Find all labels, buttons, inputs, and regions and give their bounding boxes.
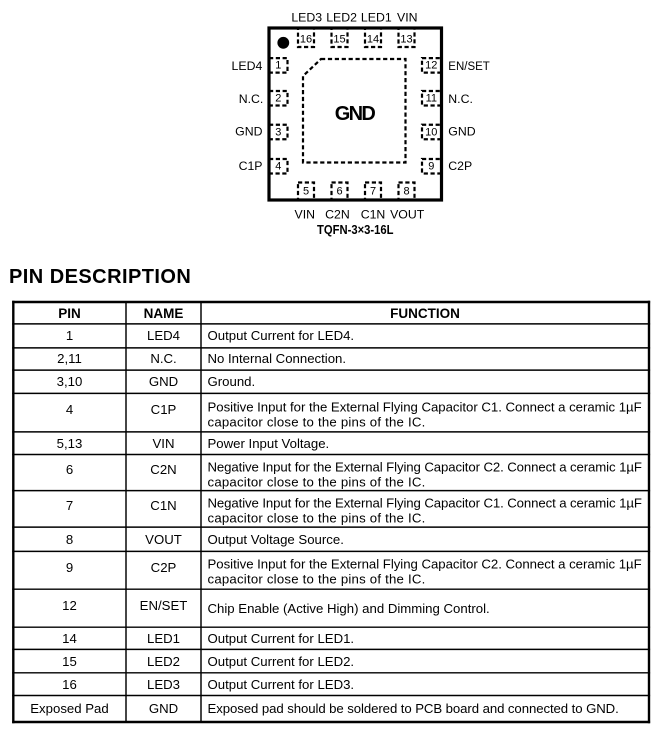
svg-text:15: 15: [333, 33, 345, 45]
svg-text:C2P: C2P: [448, 159, 472, 173]
svg-text:N.C.: N.C.: [239, 92, 264, 106]
svg-text:11: 11: [426, 92, 437, 104]
svg-text:8: 8: [403, 185, 409, 197]
svg-text:VOUT: VOUT: [390, 208, 425, 222]
svg-text:LED2: LED2: [326, 10, 357, 24]
svg-text:C2N: C2N: [325, 208, 350, 222]
svg-text:6: 6: [336, 185, 342, 197]
svg-text:N.C.: N.C.: [448, 92, 473, 106]
svg-text:GND: GND: [235, 125, 262, 139]
svg-text:7: 7: [370, 185, 376, 197]
svg-text:9: 9: [428, 160, 434, 172]
svg-text:LED3: LED3: [291, 10, 322, 24]
svg-text:GND: GND: [448, 125, 475, 139]
svg-text:16: 16: [300, 33, 312, 45]
svg-text:3: 3: [275, 126, 281, 138]
svg-text:2: 2: [275, 92, 281, 104]
svg-text:1: 1: [275, 59, 281, 71]
svg-text:13: 13: [400, 33, 412, 45]
svg-text:14: 14: [367, 33, 379, 45]
svg-text:4: 4: [275, 160, 281, 172]
svg-text:5: 5: [303, 185, 309, 197]
svg-text:C1P: C1P: [239, 159, 263, 173]
svg-text:10: 10: [425, 126, 437, 138]
svg-text:EN/SET: EN/SET: [448, 59, 490, 73]
svg-text:12: 12: [425, 59, 437, 71]
svg-text:LED1: LED1: [361, 10, 392, 24]
svg-text:VIN: VIN: [295, 208, 316, 222]
svg-text:GND: GND: [335, 103, 376, 125]
svg-text:VIN: VIN: [397, 10, 418, 24]
svg-text:C1N: C1N: [361, 208, 386, 222]
svg-text:TQFN-3×3-16L: TQFN-3×3-16L: [317, 222, 394, 237]
svg-text:LED4: LED4: [232, 59, 263, 73]
